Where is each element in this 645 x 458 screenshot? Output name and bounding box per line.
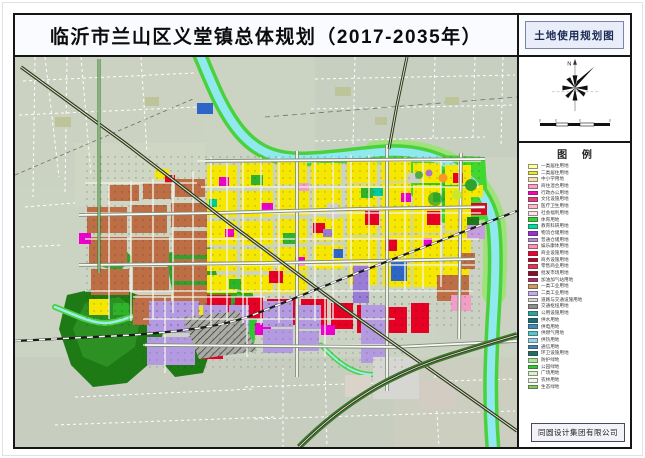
legend-swatch [528,238,538,243]
legend-item: 农林用地 [519,377,630,384]
legend-title: 图 例 [525,146,630,161]
legend-label: 道路与交通设施用地 [541,298,582,303]
legend-swatch [528,351,538,356]
legend-item: 批发市场用地 [519,270,630,277]
legend-swatch [528,184,538,189]
legend-swatch [528,331,538,336]
legend-swatch [528,244,538,249]
legend-swatch [528,304,538,309]
legend-item: 道路与交通设施用地 [519,297,630,304]
page-title: 临沂市兰山区义堂镇总体规划（2017-2035年） [15,15,517,55]
legend-swatch [528,164,538,169]
legend-swatch [528,211,538,216]
legend-swatch [528,231,538,236]
map-type-section: 土地使用规划图 [517,15,630,55]
map-type-label: 土地使用规划图 [525,21,624,49]
legend-item: 广场用地 [519,370,630,377]
legend-item: 供热用地 [519,337,630,344]
legend-label: 零售商业用地 [541,264,569,269]
legend-swatch [528,197,538,202]
legend-item: 普通仓储用地 [519,237,630,244]
legend-item: 医疗卫生用地 [519,203,630,210]
legend-swatch [528,338,538,343]
legend-item: 供水用地 [519,317,630,324]
legend-swatch [528,318,538,323]
legend-label: 批发市场用地 [541,271,569,276]
legend-label: 供水用地 [541,318,559,323]
legend-swatch [528,224,538,229]
legend-label: 二类工业用地 [541,291,569,296]
legend-label: 物流仓储用地 [541,231,569,236]
north-arrow-icon: N [525,57,625,115]
legend-label: 医疗卫生用地 [541,204,569,209]
legend-swatch [528,278,538,283]
legend-label: 商务设施用地 [541,258,569,263]
legend-label: 公用设施用地 [541,311,569,316]
legend-label: 通信用地 [541,345,559,350]
legend-swatch [528,171,538,176]
legend-swatch [528,371,538,376]
legend-label: 教育科研用地 [541,224,569,229]
legend-rows: 一类居住用地二类居住用地中小学用地商住混合用地行政办公用地文化设施用地医疗卫生用… [519,163,630,390]
legend-item: 文化设施用地 [519,196,630,203]
legend-label: 文化设施用地 [541,197,569,202]
legend-swatch [528,284,538,289]
legend-item: 二类居住用地 [519,170,630,177]
legend-swatch [528,271,538,276]
legend-item: 商业设施用地 [519,250,630,257]
legend-section: 图 例 一类居住用地二类居住用地中小学用地商住混合用地行政办公用地文化设施用地医… [519,143,630,415]
legend-label: 中小学用地 [541,177,564,182]
legend-swatch [528,177,538,182]
legend-label: 环卫设施用地 [541,351,569,356]
legend-label: 供电用地 [541,325,559,330]
legend-label: 二类居住用地 [541,171,569,176]
legend-item: 公园绿地 [519,364,630,371]
legend-item: 中小学用地 [519,176,630,183]
legend-item: 通信用地 [519,344,630,351]
legend-item: 一类居住用地 [519,163,630,170]
legend-label: 供热用地 [541,338,559,343]
legend-swatch [528,204,538,209]
legend-label: 农林用地 [541,378,559,383]
legend-item: 娱乐康体用地 [519,243,630,250]
legend-label: 生态绿地 [541,385,559,390]
legend-swatch [528,365,538,370]
legend-item: 物流仓储用地 [519,230,630,237]
legend-item: 行政办公用地 [519,190,630,197]
legend-item: 体育用地 [519,217,630,224]
legend-label: 公园绿地 [541,365,559,370]
map-layers [15,57,517,447]
legend-item: 生态绿地 [519,384,630,391]
legend-item: 交通枢纽用地 [519,303,630,310]
legend-swatch [528,291,538,296]
legend-item: 加油加气站用地 [519,277,630,284]
legend-label: 一类工业用地 [541,284,569,289]
company-box: 同圆设计集团有限公司 [531,423,625,442]
legend-item: 教育科研用地 [519,223,630,230]
legend-swatch [528,324,538,329]
legend-label: 行政办公用地 [541,191,569,196]
legend-label: 娱乐康体用地 [541,244,569,249]
legend-swatch [528,358,538,363]
scale-bar [530,115,620,131]
legend-label: 广场用地 [541,371,559,376]
planning-map-page: 临沂市兰山区义堂镇总体规划（2017-2035年） 土地使用规划图 N [0,0,645,458]
legend-swatch [528,264,538,269]
legend-swatch [528,378,538,383]
legend-label: 交通枢纽用地 [541,304,569,309]
legend-item: 零售商业用地 [519,263,630,270]
legend-label: 商业设施用地 [541,251,569,256]
legend-swatch [528,345,538,350]
land-use-map [15,57,517,447]
legend-label: 普通仓储用地 [541,238,569,243]
legend-item: 公用设施用地 [519,310,630,317]
north-label: N [567,62,571,68]
legend-item: 一类工业用地 [519,283,630,290]
legend-swatch [528,298,538,303]
legend-item: 供燃气用地 [519,330,630,337]
legend-swatch [528,217,538,222]
legend-label: 防护绿地 [541,358,559,363]
legend-swatch [528,311,538,316]
legend-item: 供电用地 [519,324,630,331]
legend-panel: N [517,57,630,447]
legend-swatch [528,191,538,196]
legend-item: 商住混合用地 [519,183,630,190]
legend-swatch [528,258,538,263]
legend-label: 供燃气用地 [541,331,564,336]
legend-label: 社会福利用地 [541,211,569,216]
legend-label: 加油加气站用地 [541,278,573,283]
legend-item: 防护绿地 [519,357,630,364]
legend-swatch [528,251,538,256]
compass-section: N [519,57,630,143]
legend-item: 环卫设施用地 [519,350,630,357]
legend-swatch [528,385,538,390]
legend-item: 二类工业用地 [519,290,630,297]
legend-label: 一类居住用地 [541,164,569,169]
legend-item: 社会福利用地 [519,210,630,217]
legend-label: 商住混合用地 [541,184,569,189]
legend-label: 体育用地 [541,218,559,223]
legend-item: 商务设施用地 [519,257,630,264]
